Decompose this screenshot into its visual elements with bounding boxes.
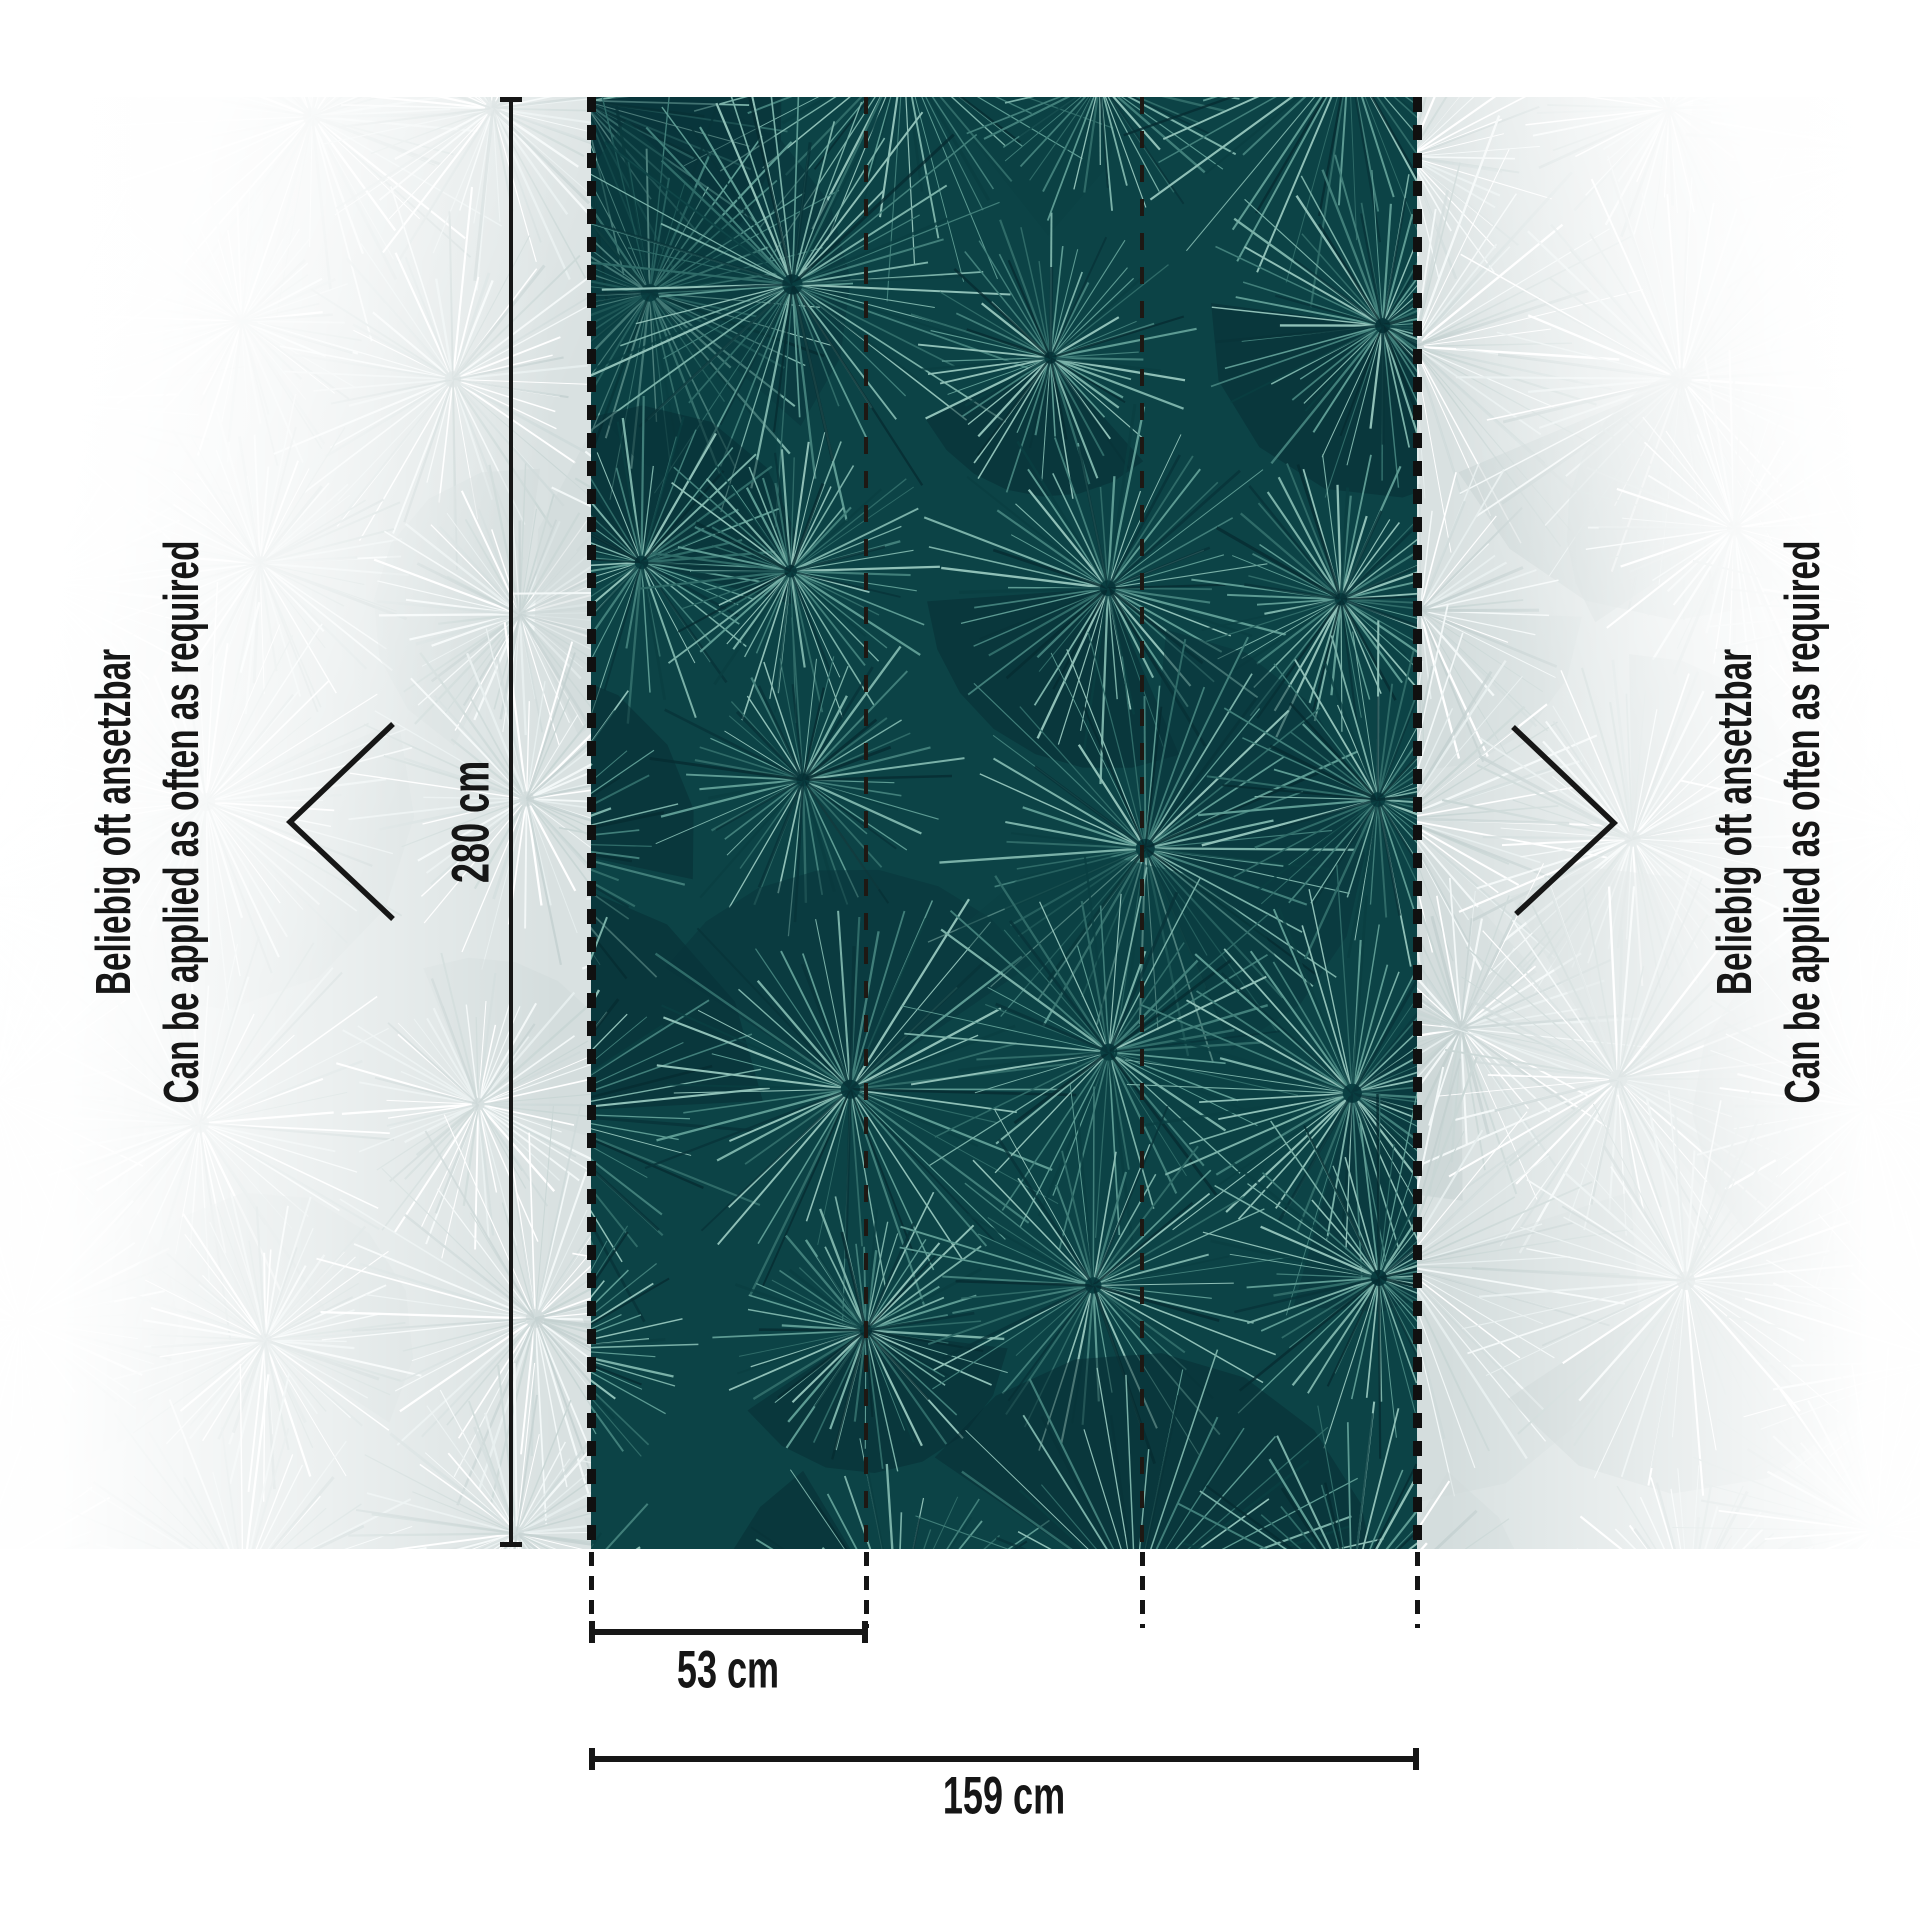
extension-dashed-line-2	[864, 1552, 869, 1628]
extension-dashed-line-3	[1140, 1552, 1145, 1628]
height-dimension-label: 280 cm	[441, 761, 502, 883]
panel-seam-dashed-line-1	[864, 97, 868, 1549]
repeat-note-left: Beliebig oft ansetzbar Can be applied as…	[80, 541, 216, 1104]
total-width-cap-right	[1413, 1748, 1419, 1770]
repeat-note-left-en: Can be applied as often as required	[148, 541, 216, 1104]
panel-edge-dashed-line-left	[587, 97, 596, 1549]
height-dimension-line	[509, 99, 513, 1547]
wallpaper-dimension-diagram: 280 cm Beliebig oft ansetzbar Can be app…	[0, 0, 1920, 1920]
repeat-note-right: Beliebig oft ansetzbar Can be applied as…	[1701, 541, 1837, 1104]
wallpaper-preview-faded-right	[1417, 97, 1920, 1549]
strip-width-cap-left	[589, 1621, 595, 1643]
height-dimension-cap-top	[500, 97, 522, 102]
total-width-dimension-line	[591, 1756, 1417, 1762]
repeat-note-left-de: Beliebig oft ansetzbar	[80, 541, 148, 1104]
strip-width-dimension-label: 53 cm	[677, 1640, 779, 1701]
repeat-note-right-de: Beliebig oft ansetzbar	[1701, 541, 1769, 1104]
panel-edge-dashed-line-right	[1413, 97, 1422, 1549]
wallpaper-panel	[591, 97, 1417, 1549]
strip-width-dimension-line	[591, 1629, 866, 1635]
strip-width-cap-right	[862, 1621, 868, 1643]
extension-dashed-line-4	[1415, 1552, 1420, 1628]
repeat-right-chevron-icon	[1508, 722, 1620, 920]
panel-seam-dashed-line-2	[1140, 97, 1144, 1549]
total-width-dimension-label: 159 cm	[943, 1766, 1065, 1827]
repeat-left-chevron-icon	[285, 719, 400, 925]
total-width-cap-left	[589, 1748, 595, 1770]
extension-dashed-line-1	[589, 1552, 594, 1628]
repeat-note-right-en: Can be applied as often as required	[1769, 541, 1837, 1104]
height-dimension-cap-bottom	[500, 1542, 522, 1547]
